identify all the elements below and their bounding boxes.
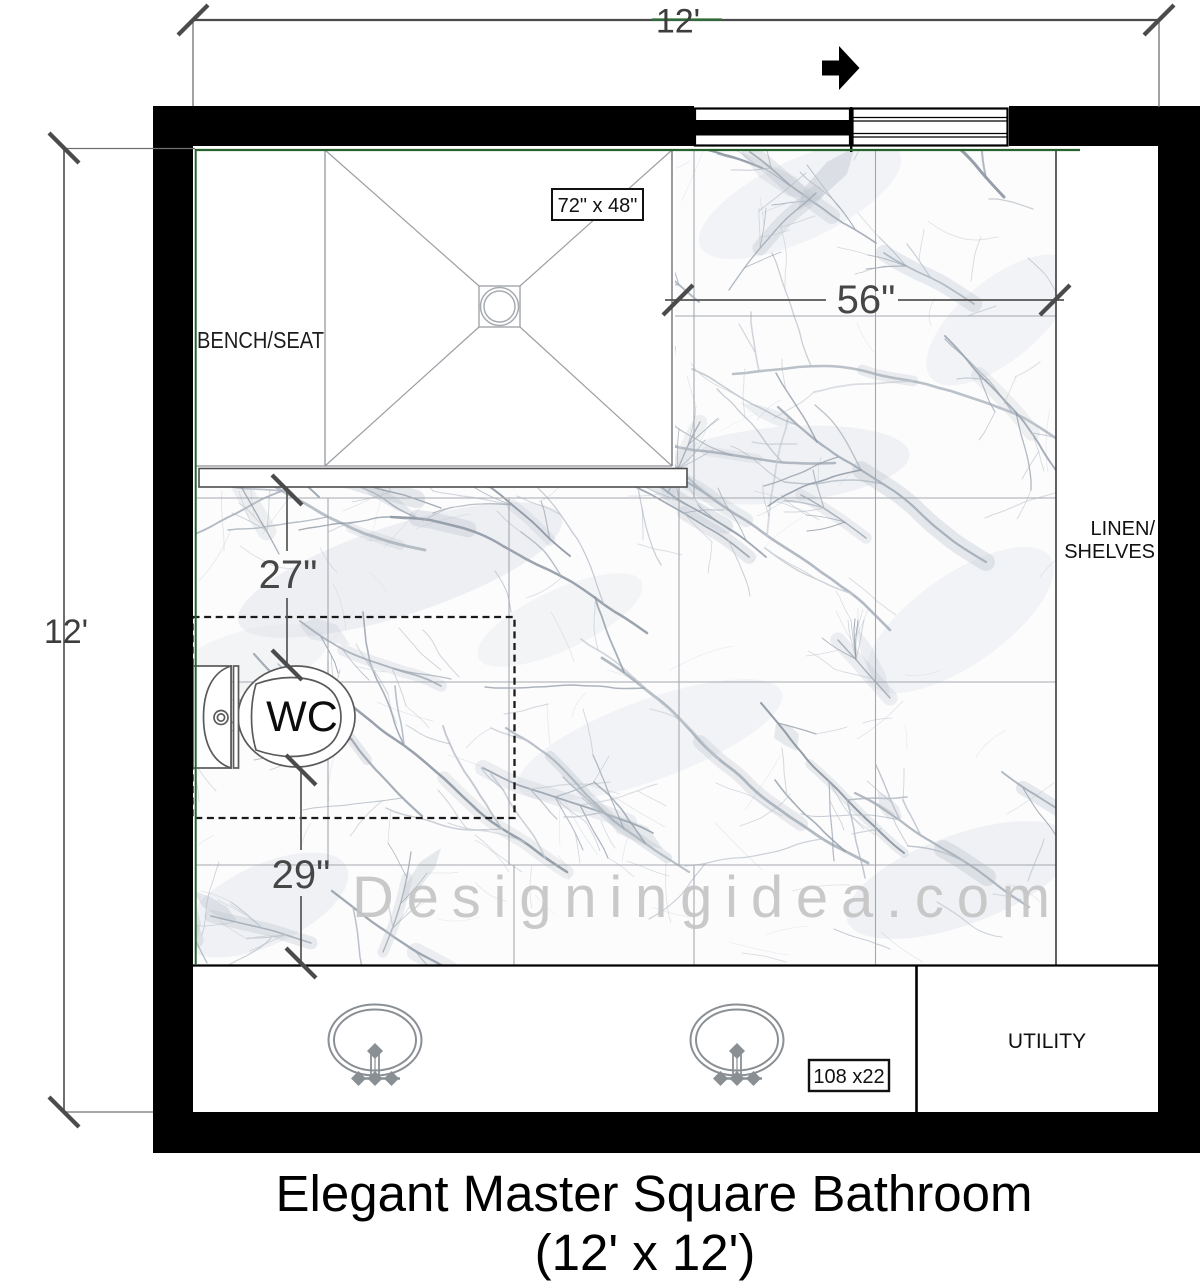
svg-text:SHELVES: SHELVES xyxy=(1064,541,1155,563)
svg-text:56": 56" xyxy=(837,278,896,322)
svg-text:108 x22: 108 x22 xyxy=(813,1066,884,1088)
svg-text:Elegant Master Square Bathroom: Elegant Master Square Bathroom xyxy=(276,1165,1033,1222)
svg-text:Designingidea.com: Designingidea.com xyxy=(352,865,1063,930)
svg-text:BENCH/SEAT: BENCH/SEAT xyxy=(197,327,324,353)
svg-text:UTILITY: UTILITY xyxy=(1008,1030,1086,1053)
svg-text:27": 27" xyxy=(259,553,318,597)
svg-text:72" x 48": 72" x 48" xyxy=(558,195,638,217)
svg-text:29": 29" xyxy=(272,853,331,897)
svg-text:LINEN/: LINEN/ xyxy=(1091,518,1156,540)
svg-text:WC: WC xyxy=(266,693,338,741)
svg-text:12': 12' xyxy=(44,613,88,651)
svg-text:(12' x 12'): (12' x 12') xyxy=(535,1224,756,1281)
svg-text:12': 12' xyxy=(656,3,700,41)
